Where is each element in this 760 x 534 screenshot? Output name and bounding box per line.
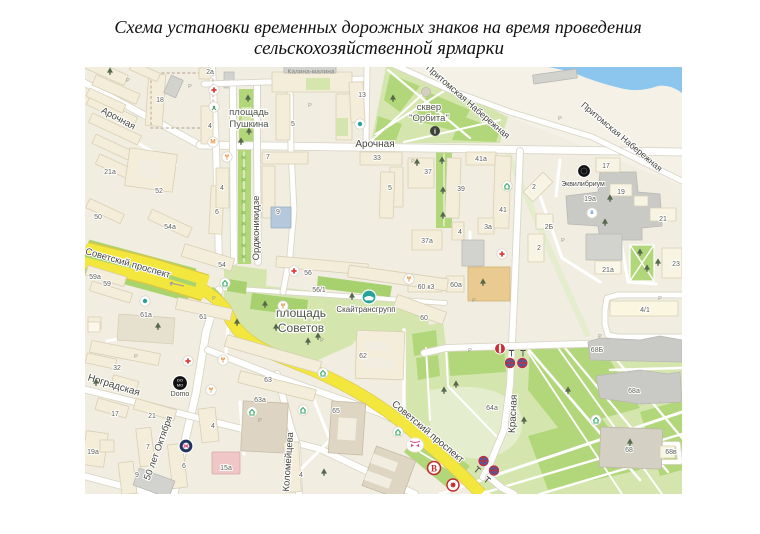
svg-text:P: P — [558, 116, 562, 122]
svg-text:P: P — [598, 334, 602, 340]
svg-text:61а: 61а — [140, 312, 152, 319]
svg-text:68в: 68в — [665, 449, 677, 456]
svg-text:Калина-малина: Калина-малина — [288, 69, 335, 76]
svg-text:32: 32 — [113, 365, 121, 372]
svg-text:4: 4 — [220, 185, 224, 192]
svg-text:50: 50 — [94, 214, 102, 221]
svg-text:54: 54 — [218, 262, 226, 269]
svg-text:Domo: Domo — [171, 391, 190, 398]
svg-text:P: P — [308, 103, 312, 109]
svg-text:63: 63 — [264, 377, 272, 384]
svg-text:в: в — [590, 210, 593, 216]
svg-text:P: P — [126, 78, 130, 84]
svg-text:23: 23 — [672, 261, 680, 268]
svg-text:64а: 64а — [486, 405, 498, 412]
svg-text:7: 7 — [146, 444, 150, 451]
svg-text:18: 18 — [156, 97, 164, 104]
svg-text:17: 17 — [111, 411, 119, 418]
svg-text:4: 4 — [299, 472, 303, 479]
svg-text:P: P — [188, 84, 192, 90]
svg-text:15а: 15а — [220, 465, 232, 472]
svg-text:68: 68 — [625, 447, 633, 454]
svg-text:✸: ✸ — [449, 480, 457, 490]
svg-text:9: 9 — [276, 209, 280, 216]
svg-text:P: P — [320, 338, 324, 344]
svg-text:2: 2 — [532, 184, 536, 191]
svg-text:52: 52 — [155, 188, 163, 195]
svg-text:7: 7 — [266, 154, 270, 161]
svg-text:68Б: 68Б — [591, 347, 604, 354]
svg-text:В: В — [431, 464, 437, 474]
svg-text:Красная: Красная — [507, 394, 520, 433]
svg-text:21: 21 — [659, 216, 667, 223]
svg-text:3а: 3а — [484, 224, 492, 231]
svg-text:M: M — [210, 139, 215, 146]
svg-text:21а: 21а — [602, 267, 614, 274]
svg-text:41: 41 — [499, 207, 507, 214]
svg-text:P: P — [472, 298, 476, 304]
svg-text:9: 9 — [135, 472, 139, 479]
svg-text:33: 33 — [373, 155, 381, 162]
svg-text:"Орбита": "Орбита" — [409, 113, 449, 124]
svg-text:2а: 2а — [206, 69, 214, 76]
svg-text:54а: 54а — [164, 224, 176, 231]
svg-text:MO: MO — [177, 383, 183, 388]
svg-text:21а: 21а — [104, 169, 116, 176]
svg-text:56: 56 — [304, 270, 312, 277]
svg-text:P: P — [561, 238, 565, 244]
svg-text:37: 37 — [424, 169, 432, 176]
svg-text:6: 6 — [182, 463, 186, 470]
svg-text:4: 4 — [211, 423, 215, 430]
svg-text:39: 39 — [457, 186, 465, 193]
svg-text:P: P — [658, 296, 662, 302]
svg-text:62: 62 — [359, 353, 367, 360]
svg-text:2Б: 2Б — [545, 224, 554, 231]
svg-text:2: 2 — [537, 245, 541, 252]
svg-text:Орджоникидзе: Орджоникидзе — [251, 196, 262, 261]
svg-text:P: P — [468, 348, 472, 354]
svg-text:17: 17 — [602, 163, 610, 170]
svg-text:P: P — [212, 296, 216, 302]
svg-text:Эквилибриум: Эквилибриум — [561, 180, 605, 188]
svg-text:4: 4 — [458, 229, 462, 236]
svg-text:i: i — [434, 128, 436, 136]
svg-text:19а: 19а — [584, 196, 596, 203]
svg-text:Арочная: Арочная — [355, 139, 394, 150]
svg-text:68а: 68а — [628, 388, 640, 395]
svg-text:4/1: 4/1 — [640, 307, 650, 314]
svg-text:сквер: сквер — [417, 102, 441, 113]
svg-text:Схема установки временных доро: Схема установки временных дорожных знако… — [114, 17, 641, 37]
svg-text:13: 13 — [358, 92, 366, 99]
svg-text:41а: 41а — [475, 156, 487, 163]
svg-text:P: P — [411, 159, 415, 165]
svg-text:Советов: Советов — [278, 321, 324, 335]
svg-text:56/1: 56/1 — [312, 287, 326, 294]
svg-text:65: 65 — [332, 408, 340, 415]
svg-text:P: P — [134, 354, 138, 360]
svg-text:63а: 63а — [254, 397, 266, 404]
svg-text:P: P — [258, 418, 262, 424]
svg-text:4: 4 — [208, 123, 212, 130]
svg-text:60а: 60а — [450, 282, 462, 289]
svg-text:сельскохозяйственной ярмарки: сельскохозяйственной ярмарки — [254, 38, 504, 59]
svg-text:59а: 59а — [89, 274, 101, 281]
svg-text:61: 61 — [199, 314, 207, 321]
svg-text:37а: 37а — [421, 238, 433, 245]
svg-text:5: 5 — [388, 185, 392, 192]
svg-text:Скайтрансгрупп: Скайтрансгрупп — [336, 305, 395, 314]
svg-text:60 к3: 60 к3 — [418, 284, 435, 291]
svg-text:59: 59 — [103, 281, 111, 288]
svg-text:площадь: площадь — [229, 107, 269, 118]
svg-text:19а: 19а — [87, 449, 99, 456]
svg-text:5: 5 — [291, 121, 295, 128]
svg-text:6: 6 — [215, 209, 219, 216]
svg-text:60: 60 — [420, 315, 428, 322]
svg-text:19: 19 — [617, 189, 625, 196]
svg-text:21: 21 — [148, 413, 156, 420]
